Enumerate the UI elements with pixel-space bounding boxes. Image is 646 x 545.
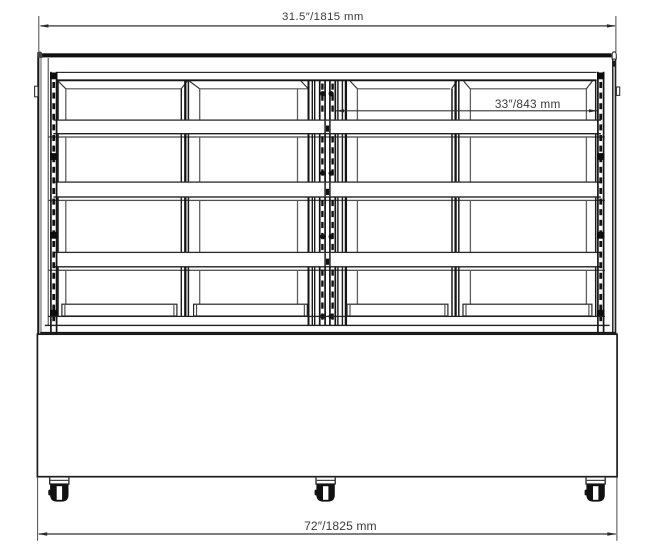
svg-text:33″/843 mm: 33″/843 mm [495,97,561,111]
svg-text:31.5″/1815 mm: 31.5″/1815 mm [282,11,364,23]
svg-text:72″/1825 mm: 72″/1825 mm [304,519,377,533]
